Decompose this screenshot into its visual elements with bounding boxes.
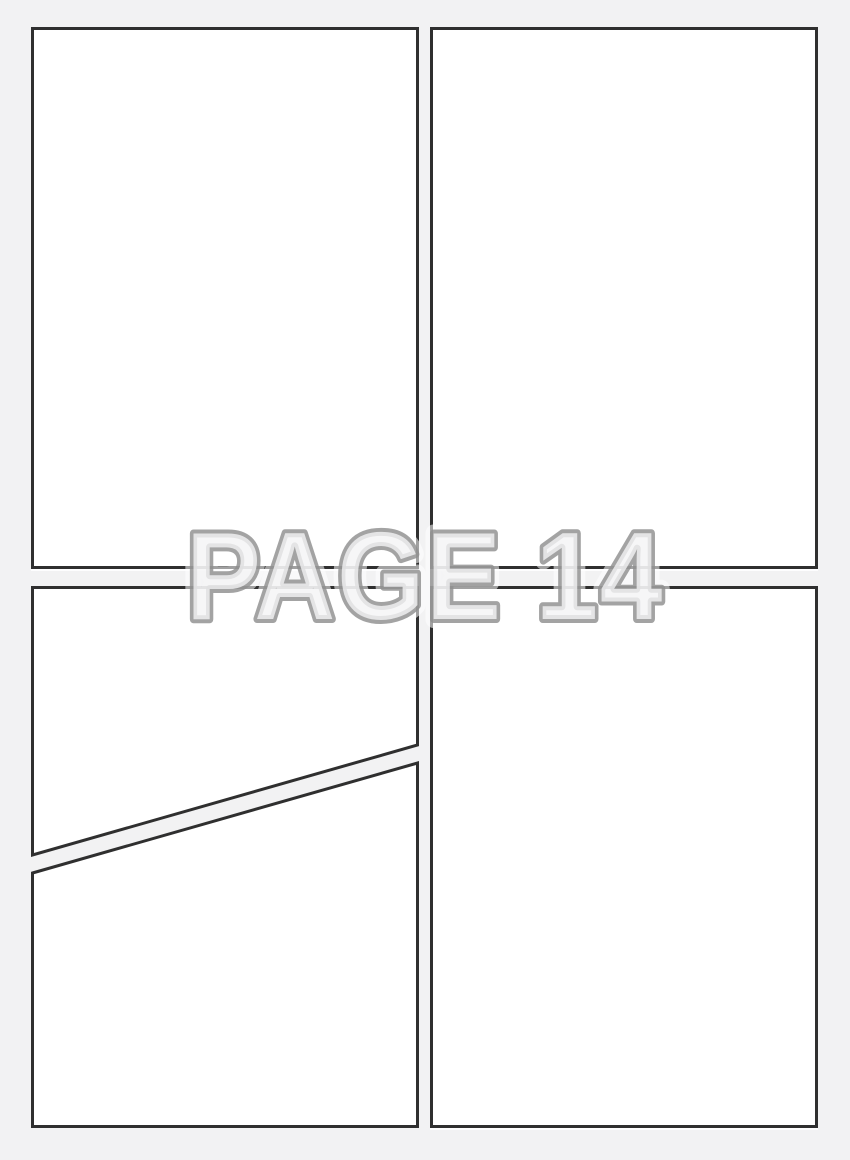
panel-bottom-left-group	[31, 586, 419, 1128]
panel-top-right	[430, 27, 818, 569]
panel-top-left	[31, 27, 419, 569]
comic-page-template: PAGE 14 PAGE 14	[0, 0, 850, 1160]
panel-bottom-right	[430, 586, 818, 1128]
